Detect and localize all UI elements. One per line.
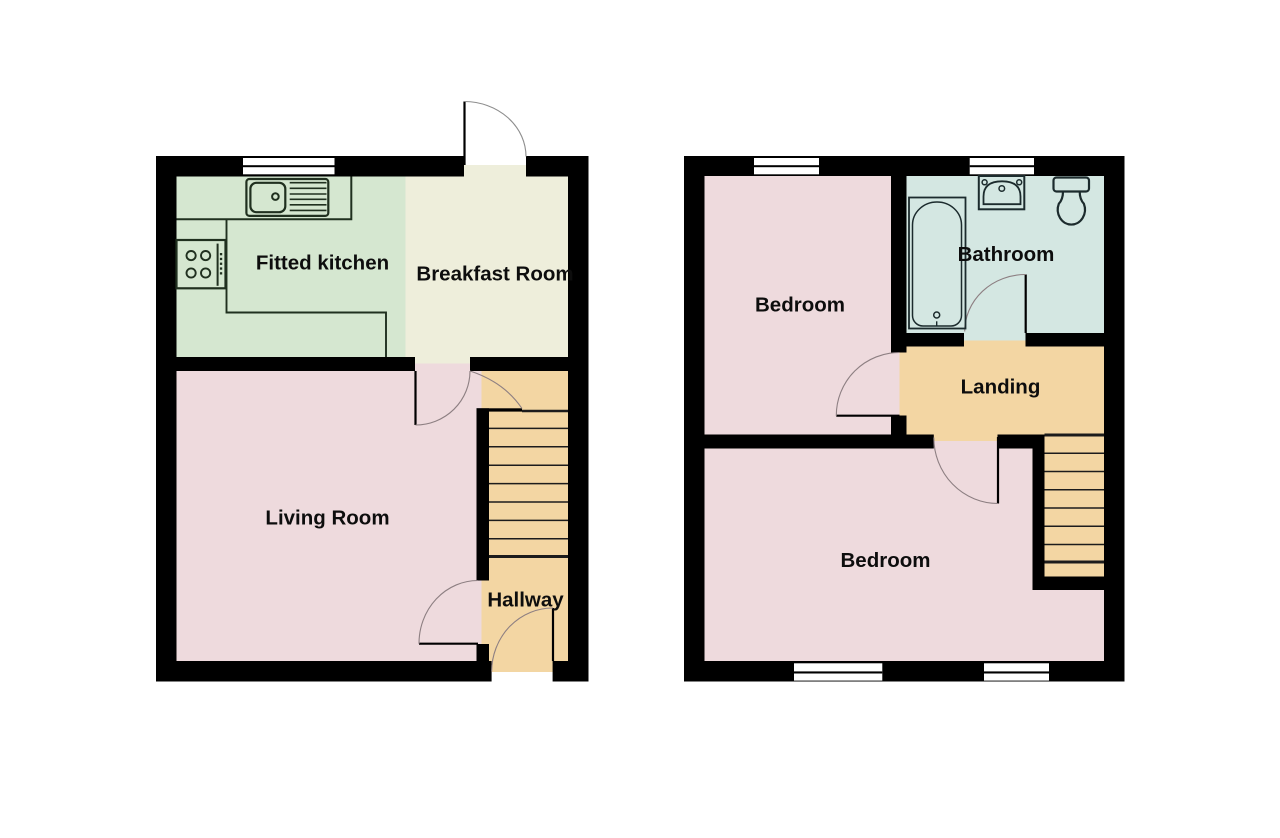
svg-text:Bedroom: Bedroom <box>841 549 931 572</box>
svg-text:Bathroom: Bathroom <box>958 243 1055 266</box>
svg-text:Landing: Landing <box>961 376 1041 399</box>
svg-text:Bedroom: Bedroom <box>755 294 845 317</box>
svg-text:Hallway: Hallway <box>487 589 564 612</box>
svg-text:Living Room: Living Room <box>265 507 389 530</box>
svg-text:Fitted kitchen: Fitted kitchen <box>256 252 389 275</box>
svg-text:Breakfast Room: Breakfast Room <box>416 263 573 286</box>
